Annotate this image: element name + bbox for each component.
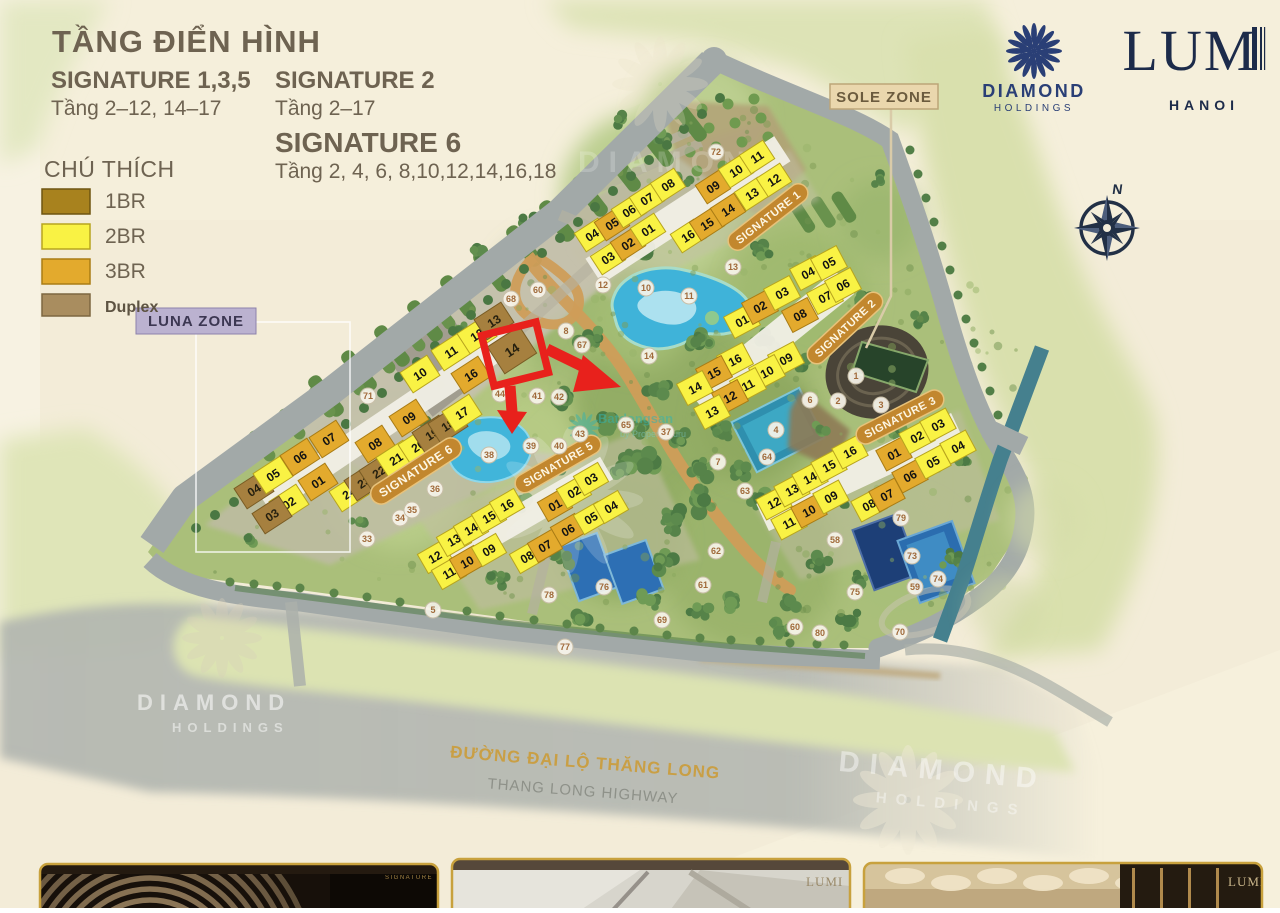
svg-text:Batdongsan: Batdongsan — [598, 411, 673, 426]
svg-text:79: 79 — [896, 513, 906, 523]
svg-text:38: 38 — [484, 450, 494, 460]
svg-text:42: 42 — [554, 392, 564, 402]
svg-text:72: 72 — [711, 147, 721, 157]
svg-text:5: 5 — [430, 605, 435, 615]
svg-text:HOLDINGS: HOLDINGS — [172, 720, 289, 735]
svg-text:3: 3 — [878, 400, 883, 410]
svg-text:60: 60 — [790, 622, 800, 632]
svg-text:DIAMOND: DIAMOND — [982, 81, 1086, 101]
svg-text:40: 40 — [554, 441, 564, 451]
svg-text:65: 65 — [621, 420, 631, 430]
svg-text:LUMI: LUMI — [806, 874, 843, 889]
svg-text:LUM: LUM — [1123, 18, 1258, 83]
svg-text:LUNA ZONE: LUNA ZONE — [148, 313, 244, 330]
svg-text:11: 11 — [684, 291, 694, 301]
svg-text:Tầng 2–12, 14–17: Tầng 2–12, 14–17 — [51, 97, 221, 120]
svg-text:13: 13 — [728, 262, 738, 272]
svg-text:10: 10 — [641, 283, 651, 293]
svg-text:2BR: 2BR — [105, 225, 146, 248]
svg-text:7: 7 — [715, 457, 720, 467]
svg-text:4: 4 — [773, 425, 778, 435]
svg-text:43: 43 — [575, 429, 585, 439]
svg-text:SIGNATURE 2: SIGNATURE 2 — [275, 67, 435, 94]
svg-text:58: 58 — [830, 535, 840, 545]
svg-text:HANOI: HANOI — [1169, 97, 1239, 113]
svg-text:2: 2 — [835, 396, 840, 406]
svg-text:63: 63 — [740, 486, 750, 496]
svg-text:73: 73 — [907, 551, 917, 561]
svg-text:75: 75 — [850, 587, 860, 597]
svg-text:71: 71 — [363, 391, 373, 401]
svg-text:CHÚ THÍCH: CHÚ THÍCH — [44, 156, 175, 182]
svg-text:60: 60 — [533, 285, 543, 295]
svg-text:61: 61 — [698, 580, 708, 590]
svg-text:LUMI: LUMI — [1228, 874, 1265, 889]
svg-text:35: 35 — [407, 505, 417, 515]
svg-text:76: 76 — [599, 582, 609, 592]
svg-text:SIGNATURE 6: SIGNATURE 6 — [275, 127, 461, 158]
svg-text:33: 33 — [362, 534, 372, 544]
svg-text:1BR: 1BR — [105, 190, 146, 213]
svg-text:70: 70 — [895, 627, 905, 637]
svg-text:41: 41 — [532, 391, 542, 401]
svg-text:69: 69 — [657, 615, 667, 625]
svg-text:37: 37 — [661, 427, 671, 437]
svg-text:59: 59 — [910, 582, 920, 592]
svg-text:64: 64 — [762, 452, 772, 462]
svg-text:TẦNG ĐIỂN HÌNH: TẦNG ĐIỂN HÌNH — [52, 24, 321, 59]
svg-text:Tầng 2–17: Tầng 2–17 — [275, 97, 375, 120]
svg-text:Duplex: Duplex — [105, 299, 158, 316]
svg-text:HOLDINGS: HOLDINGS — [994, 103, 1074, 114]
svg-text:14: 14 — [644, 351, 654, 361]
svg-text:78: 78 — [544, 590, 554, 600]
svg-text:67: 67 — [577, 340, 587, 350]
svg-text:44: 44 — [495, 389, 505, 399]
svg-text:6: 6 — [807, 395, 812, 405]
svg-text:12: 12 — [598, 280, 608, 290]
svg-text:DIAMOND: DIAMOND — [137, 690, 291, 715]
svg-text:SIGNATURE: SIGNATURE — [385, 875, 433, 881]
svg-text:Tầng 2, 4, 6, 8,10,12,14,16,18: Tầng 2, 4, 6, 8,10,12,14,16,18 — [275, 160, 556, 183]
svg-text:8: 8 — [563, 326, 568, 336]
svg-text:62: 62 — [711, 546, 721, 556]
svg-text:68: 68 — [506, 294, 516, 304]
svg-text:SOLE ZONE: SOLE ZONE — [836, 89, 932, 106]
svg-text:80: 80 — [815, 628, 825, 638]
svg-text:77: 77 — [560, 642, 570, 652]
svg-text:3BR: 3BR — [105, 260, 146, 283]
svg-text:36: 36 — [430, 484, 440, 494]
svg-text:34: 34 — [395, 513, 405, 523]
svg-text:39: 39 — [526, 441, 536, 451]
svg-text:74: 74 — [933, 574, 943, 584]
svg-text:1: 1 — [853, 371, 858, 381]
svg-text:SIGNATURE 1,3,5: SIGNATURE 1,3,5 — [51, 67, 251, 94]
